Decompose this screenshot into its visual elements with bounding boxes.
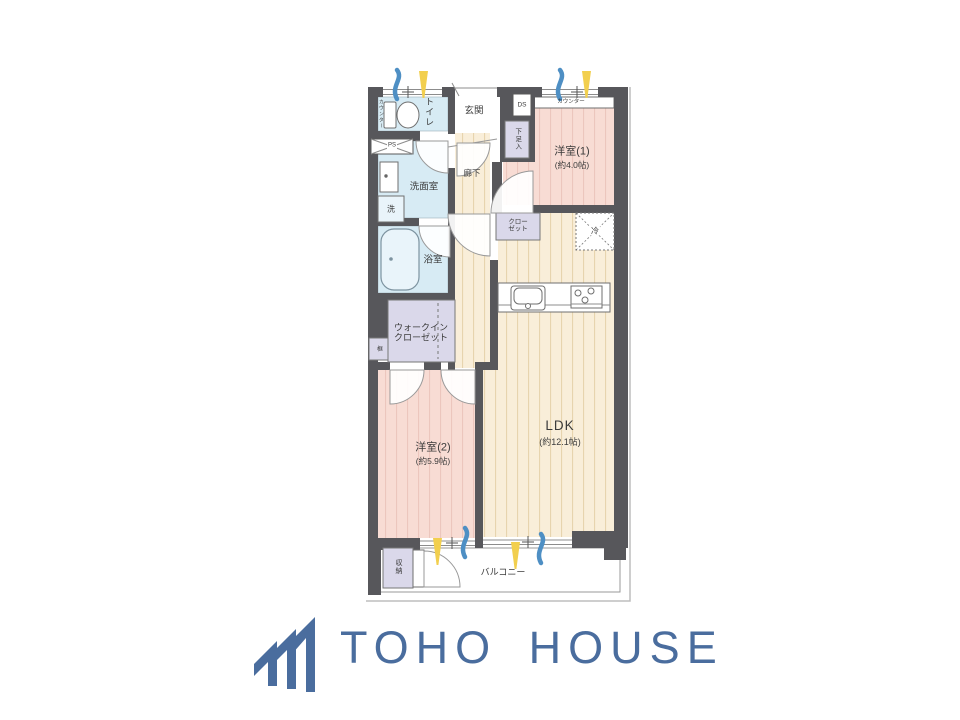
label-ldk-size: (約12.1帖) [539,437,581,447]
label-washroom: 洗面室 [410,183,439,194]
label-pipe-space: PS [387,143,397,150]
label-toilet: トイレ [424,97,434,127]
label-kamachi: 框 [375,346,382,353]
label-counter-toilet: カウンター [377,99,383,129]
toho-house-logo: TOHO HOUSE [340,622,724,674]
sink-icon [511,286,545,310]
label-hallway: 廊下 [463,169,480,179]
label-shoe-cabinet: 下足入 [513,128,520,151]
label-western1-size: (約4.0帖) [555,161,589,171]
label-closet: クロー ゼット [508,219,528,234]
vanity-icon [380,162,398,192]
label-walk-in-closet: ウォークイン クローゼット [394,323,448,344]
bathtub-icon [381,229,419,290]
toho-house-logo-icon [254,617,315,692]
label-western2-name: 洋室(2) [415,442,450,455]
floorplan-page: カウンター トイレ 玄関 DS 下足入 カウンター 洋室(1) (約4.0帖) … [0,0,960,720]
label-ldk-name: LDK [545,418,574,434]
brand-name: TOHO HOUSE [340,622,724,674]
label-entrance: 玄関 [464,107,483,118]
label-western2-size: (約5.9帖) [416,457,450,467]
sunlight-icon [419,71,428,98]
label-wic-line1: ウォークイン [394,323,448,333]
label-western1-name: 洋室(1) [554,146,589,159]
toilet-icon [384,102,419,128]
label-balcony: バルコニー [481,567,526,577]
label-refrigerator: 冷 [590,226,600,235]
label-washer: 洗 [387,204,395,213]
label-duct-space: DS [517,101,526,108]
label-bathroom: 浴室 [423,256,442,267]
sunlight-icon [582,71,591,98]
label-counter-bedroom: カウンター [557,99,585,105]
label-storage: 収納 [394,559,402,575]
stove-icon [571,286,602,308]
label-wic-line2: クローゼット [394,333,448,343]
label-closet-line2: ゼット [508,226,528,233]
